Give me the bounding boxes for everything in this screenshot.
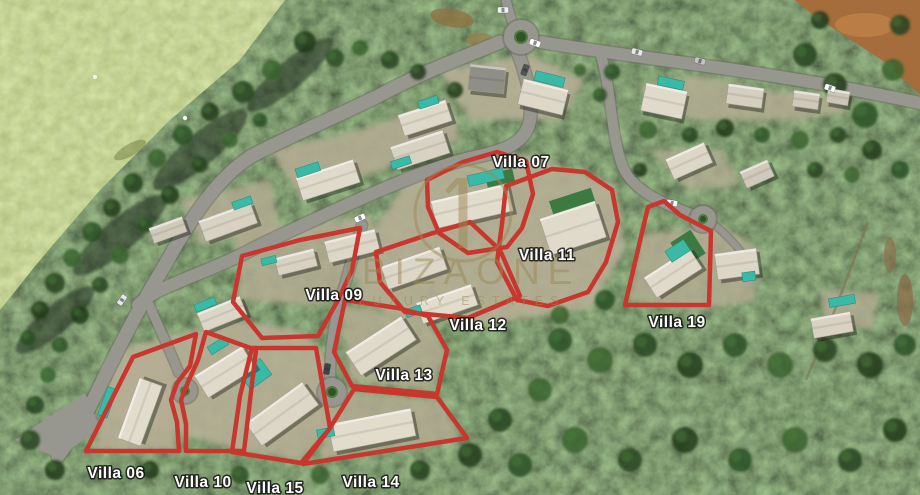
tree-highlight [255, 115, 261, 121]
tree-highlight [297, 34, 307, 44]
building [467, 64, 509, 98]
tree-highlight [796, 46, 807, 57]
tree-highlight [641, 123, 649, 131]
tree-highlight [449, 84, 456, 91]
tree-highlight [28, 398, 36, 406]
tree-highlight [893, 163, 901, 171]
tree-highlight [636, 336, 647, 347]
building [791, 90, 823, 114]
tree-highlight [313, 468, 321, 476]
plot-label-villa-11: Villa 11 [519, 247, 575, 264]
tree-highlight [675, 430, 687, 442]
tree-highlight [855, 105, 867, 117]
tree-highlight [139, 219, 146, 226]
tree-highlight [105, 201, 113, 209]
tree-highlight [224, 134, 231, 141]
tree-highlight [816, 341, 827, 352]
tree-highlight [163, 188, 171, 196]
tree-highlight [785, 430, 797, 442]
tree-highlight [553, 308, 561, 316]
tree-highlight [595, 90, 601, 96]
tree-highlight [551, 331, 562, 342]
site-plan-image: IBIZAONE LUXURY ESTATES Villa 07Villa 11… [0, 0, 920, 495]
tree-highlight [85, 225, 94, 234]
tree-highlight [565, 430, 577, 442]
tree-highlight [126, 176, 135, 185]
tree-highlight [635, 165, 641, 171]
tree-highlight [886, 421, 897, 432]
plot-label-villa-15: Villa 15 [246, 480, 303, 495]
tree-highlight [606, 66, 613, 73]
tree-highlight [860, 355, 872, 367]
golf-marker-dot [183, 116, 187, 120]
tree-highlight [354, 42, 361, 49]
tree-highlight [846, 169, 853, 176]
tree-highlight [233, 468, 241, 476]
site-plan-svg: IBIZAONE LUXURY ESTATES Villa 07Villa 11… [0, 0, 920, 495]
plot-label-villa-19: Villa 19 [648, 314, 705, 331]
plot-label-villa-13: Villa 13 [375, 367, 432, 384]
tree-highlight [48, 463, 57, 472]
golf-marker-dot [93, 75, 97, 79]
plot-label-villa-09: Villa 09 [305, 287, 362, 304]
car-windshield [502, 8, 505, 12]
tree-highlight [48, 276, 57, 285]
turning-loop-island-tree [700, 216, 706, 222]
tree-highlight [176, 128, 185, 137]
tree-highlight [590, 350, 602, 362]
tree-highlight [598, 293, 607, 302]
tree-highlight [832, 129, 839, 136]
tree-highlight [897, 337, 907, 347]
tree-highlight [54, 339, 61, 346]
tree-highlight [265, 63, 274, 72]
tree-highlight [461, 446, 472, 457]
tree-highlight [203, 105, 211, 113]
tree-highlight [235, 84, 245, 94]
tree-highlight [813, 13, 821, 21]
tree-highlight [94, 279, 101, 286]
tree-highlight [73, 308, 81, 316]
tree-highlight [893, 18, 902, 27]
building [714, 248, 763, 285]
tree-highlight [42, 369, 49, 376]
plot-label-villa-12: Villa 12 [449, 317, 506, 334]
tree-highlight [621, 451, 632, 462]
tree-highlight [491, 411, 502, 422]
plot-label-villa-07: Villa 07 [492, 154, 549, 171]
tree-highlight [684, 129, 691, 136]
swimming-pool [742, 271, 756, 282]
tree-highlight [680, 355, 692, 367]
cul-de-sac-circle-1-island-tree [328, 388, 336, 396]
tree-highlight [793, 133, 801, 141]
tree-highlight [531, 381, 542, 392]
plot-label-villa-14: Villa 14 [342, 474, 399, 491]
tree-highlight [885, 62, 895, 72]
car [498, 7, 509, 13]
tree-highlight [23, 433, 32, 442]
tree-highlight [718, 121, 726, 129]
tree-highlight [383, 53, 391, 61]
tree-highlight [150, 151, 158, 159]
roundabout-island-tree [516, 32, 526, 42]
tree-highlight [328, 51, 336, 59]
tree-highlight [726, 336, 737, 347]
tree-highlight [770, 355, 782, 367]
tree-highlight [113, 248, 121, 256]
plot-label-villa-06: Villa 06 [87, 465, 144, 482]
watermark-tagline: LUXURY ESTATES [359, 294, 566, 308]
tree-highlight [809, 164, 816, 171]
tree-highlight [194, 159, 201, 166]
tree-highlight [731, 451, 742, 462]
tree-highlight [65, 251, 73, 259]
tree-highlight [841, 451, 852, 462]
tree-highlight [865, 143, 874, 152]
plot-label-villa-10: Villa 10 [174, 474, 231, 491]
tree-highlight [511, 456, 522, 467]
tree-highlight [576, 66, 581, 71]
tree-highlight [413, 463, 422, 472]
tree-highlight [22, 332, 29, 339]
tree-highlight [33, 303, 41, 311]
tree-highlight [412, 66, 419, 73]
tree-highlight [756, 129, 763, 136]
